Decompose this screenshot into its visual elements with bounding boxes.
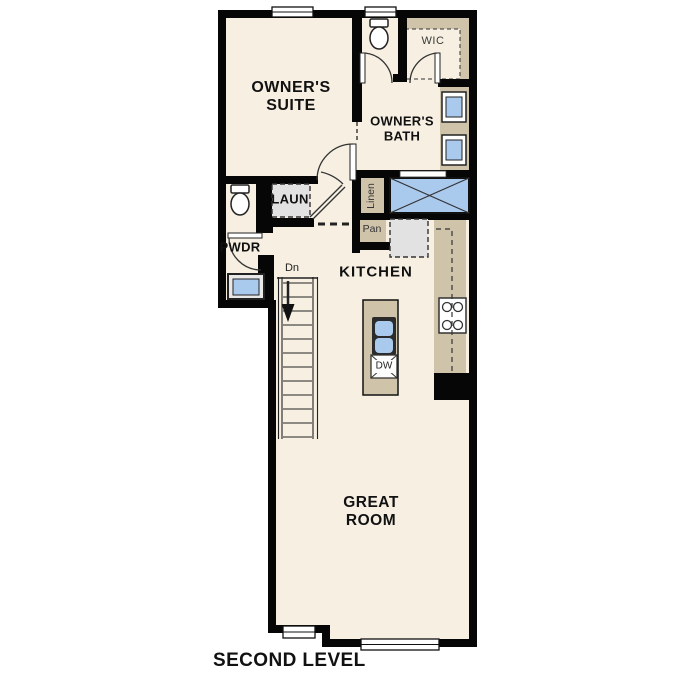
island-sink-icon	[372, 317, 396, 355]
toilet-icon	[370, 19, 388, 49]
refrigerator-icon	[390, 219, 428, 257]
stairs-direction-label: Dn	[285, 262, 299, 274]
room-label-owners-suite: OWNER'S SUITE	[251, 79, 330, 115]
room-label-owners-bath: OWNER'S BATH	[370, 114, 434, 143]
room-label-powder: PWDR	[220, 241, 261, 256]
room-label-pantry: Pan	[363, 224, 382, 236]
page-title: SECOND LEVEL	[213, 650, 366, 672]
room-label-great-room: GREAT ROOM	[343, 494, 399, 530]
floor-plan-graphics	[0, 0, 687, 687]
room-label-kitchen: KITCHEN	[339, 265, 413, 282]
room-label-linen: Linen	[366, 183, 378, 209]
powder-sink-icon	[228, 274, 264, 299]
room-label-wic: WIC	[422, 35, 445, 47]
shower-icon	[390, 171, 469, 213]
room-label-laundry: LAUN	[271, 193, 308, 208]
dishwasher-label: DW	[376, 360, 393, 371]
kitchen-counter	[434, 220, 466, 373]
shower-door	[400, 171, 446, 177]
floor-plan: OWNER'S SUITE OWNER'S BATH WIC LAUN PWDR…	[0, 0, 687, 687]
toilet-icon	[231, 185, 249, 215]
